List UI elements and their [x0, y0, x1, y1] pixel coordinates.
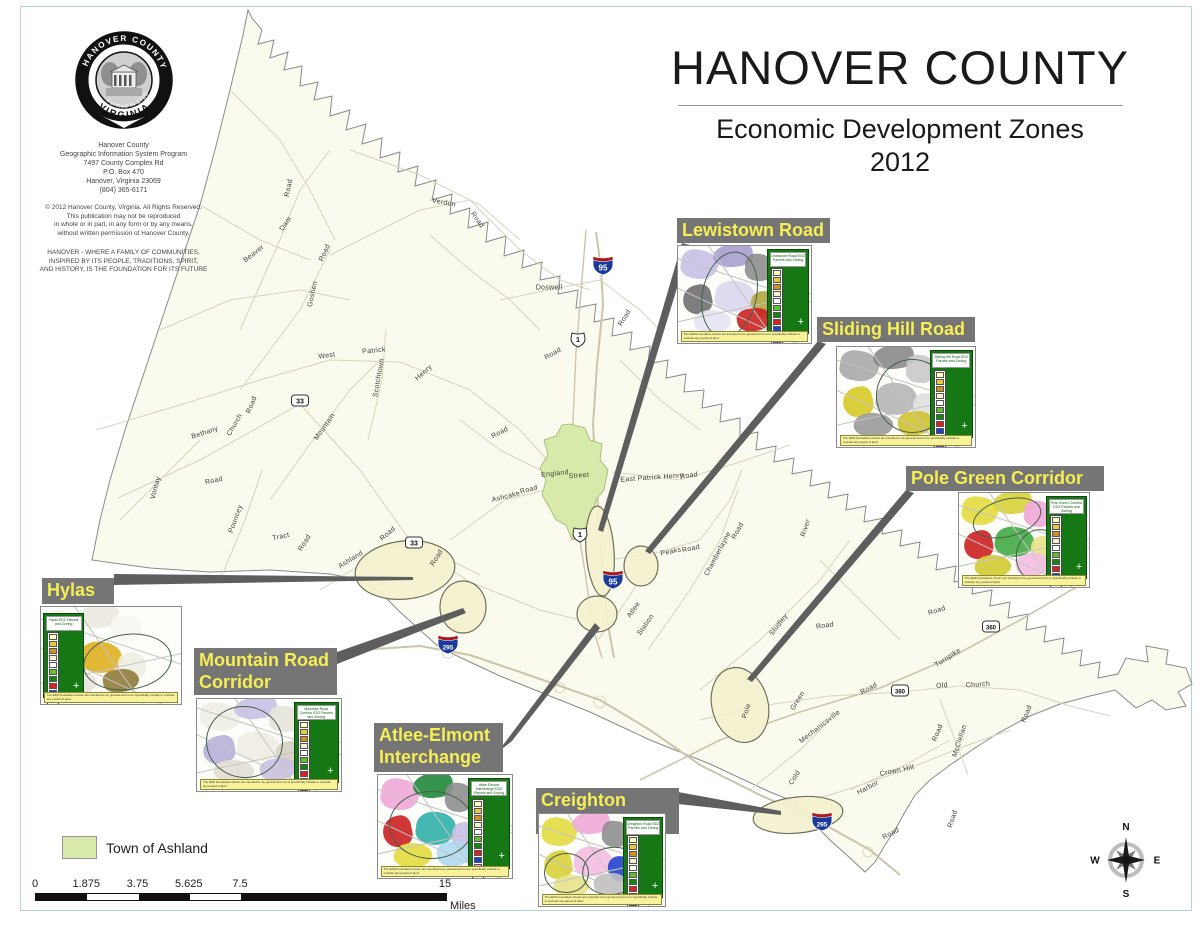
inset-legend-panel: Sliding Hill Road EDZ Parcels and Zoning… [930, 350, 973, 438]
zone-label-sliding-hill-road: Sliding Hill Road [817, 317, 975, 342]
inset-legend-title: Mountain Road Corridor EDZ Parcels and Z… [297, 705, 336, 720]
inset-legend-panel: Mountain Road Corridor EDZ Parcels and Z… [294, 702, 339, 783]
zone-label-mountain-road-corridor: Mountain Road Corridor [194, 648, 337, 695]
zone-label-pole-green-corridor: Pole Green Corridor [906, 466, 1104, 491]
inset-crosshair-icon: + [327, 766, 333, 777]
zone-label-lewistown-road: Lewistown Road [677, 218, 830, 243]
inset-caption: The EDZ boundaries shown are intended to… [381, 866, 510, 877]
zone-insets-layer: Lewistown RoadLewistown Road EDZ Parcels… [0, 0, 1200, 927]
inset-caption: The EDZ boundaries shown are intended to… [44, 692, 178, 703]
inset-legend-title: Sliding Hill Road EDZ Parcels and Zoning [932, 353, 970, 368]
inset-legend-panel: Pole Green Corridor EDZ Parcels and Zoni… [1046, 496, 1087, 579]
inset-caption: The EDZ boundaries shown are intended to… [200, 779, 338, 790]
inset-legend-panel: Creighton Road EDZ Parcels and Zoning+ [623, 817, 663, 898]
inset-caption: The EDZ boundaries shown are intended to… [962, 575, 1087, 586]
zone-inset-map-atlee-elmont-interchange: Atlee-Elmont Interchange EDZ Parcels and… [377, 774, 513, 879]
zone-label-atlee-elmont-interchange: Atlee-Elmont Interchange [374, 723, 503, 772]
zone-inset-map-lewistown-road: Lewistown Road EDZ Parcels and Zoning+Th… [677, 245, 812, 344]
inset-caption: The EDZ boundaries shown are intended to… [681, 331, 809, 342]
inset-crosshair-icon: + [798, 317, 804, 328]
inset-legend-title: Atlee-Elmont Interchange EDZ Parcels and… [471, 781, 508, 796]
inset-legend-title: Lewistown Road EDZ Parcels and Zoning [770, 252, 806, 267]
zone-label-hylas: Hylas [42, 578, 114, 604]
inset-legend-title: Pole Green Corridor EDZ Parcels and Zoni… [1049, 499, 1085, 514]
inset-crosshair-icon: + [652, 881, 658, 892]
inset-crosshair-icon: + [73, 681, 79, 692]
inset-crosshair-icon: + [961, 421, 967, 432]
inset-study-ellipse [389, 791, 474, 859]
inset-crosshair-icon: + [1076, 562, 1082, 573]
inset-legend-title: Creighton Road EDZ Parcels and Zoning [626, 820, 661, 835]
inset-caption: The EDZ boundaries shown are intended to… [840, 435, 973, 446]
zone-inset-map-pole-green-corridor: Pole Green Corridor EDZ Parcels and Zoni… [958, 492, 1090, 588]
inset-legend-title: Hylas EDZ Parcels and Zoning [46, 616, 82, 631]
inset-legend-panel: Hylas EDZ Parcels and Zoning+ [43, 613, 84, 698]
map-sheet: RoadVerdonRoadDamBeaverRoadGoshenDoswell… [0, 0, 1200, 927]
inset-legend-panel: Lewistown Road EDZ Parcels and Zoning+ [767, 249, 809, 334]
zone-inset-map-hylas: Hylas EDZ Parcels and Zoning+The EDZ bou… [40, 606, 182, 705]
inset-caption: The EDZ boundaries shown are intended to… [542, 894, 663, 905]
inset-legend-panel: Atlee-Elmont Interchange EDZ Parcels and… [468, 778, 510, 869]
inset-crosshair-icon: + [499, 851, 505, 862]
zone-inset-map-creighton-road: Creighton Road EDZ Parcels and Zoning+Th… [538, 813, 666, 907]
zone-inset-map-sliding-hill-road: Sliding Hill Road EDZ Parcels and Zoning… [836, 346, 976, 448]
zone-inset-map-mountain-road-corridor: Mountain Road Corridor EDZ Parcels and Z… [196, 698, 342, 792]
